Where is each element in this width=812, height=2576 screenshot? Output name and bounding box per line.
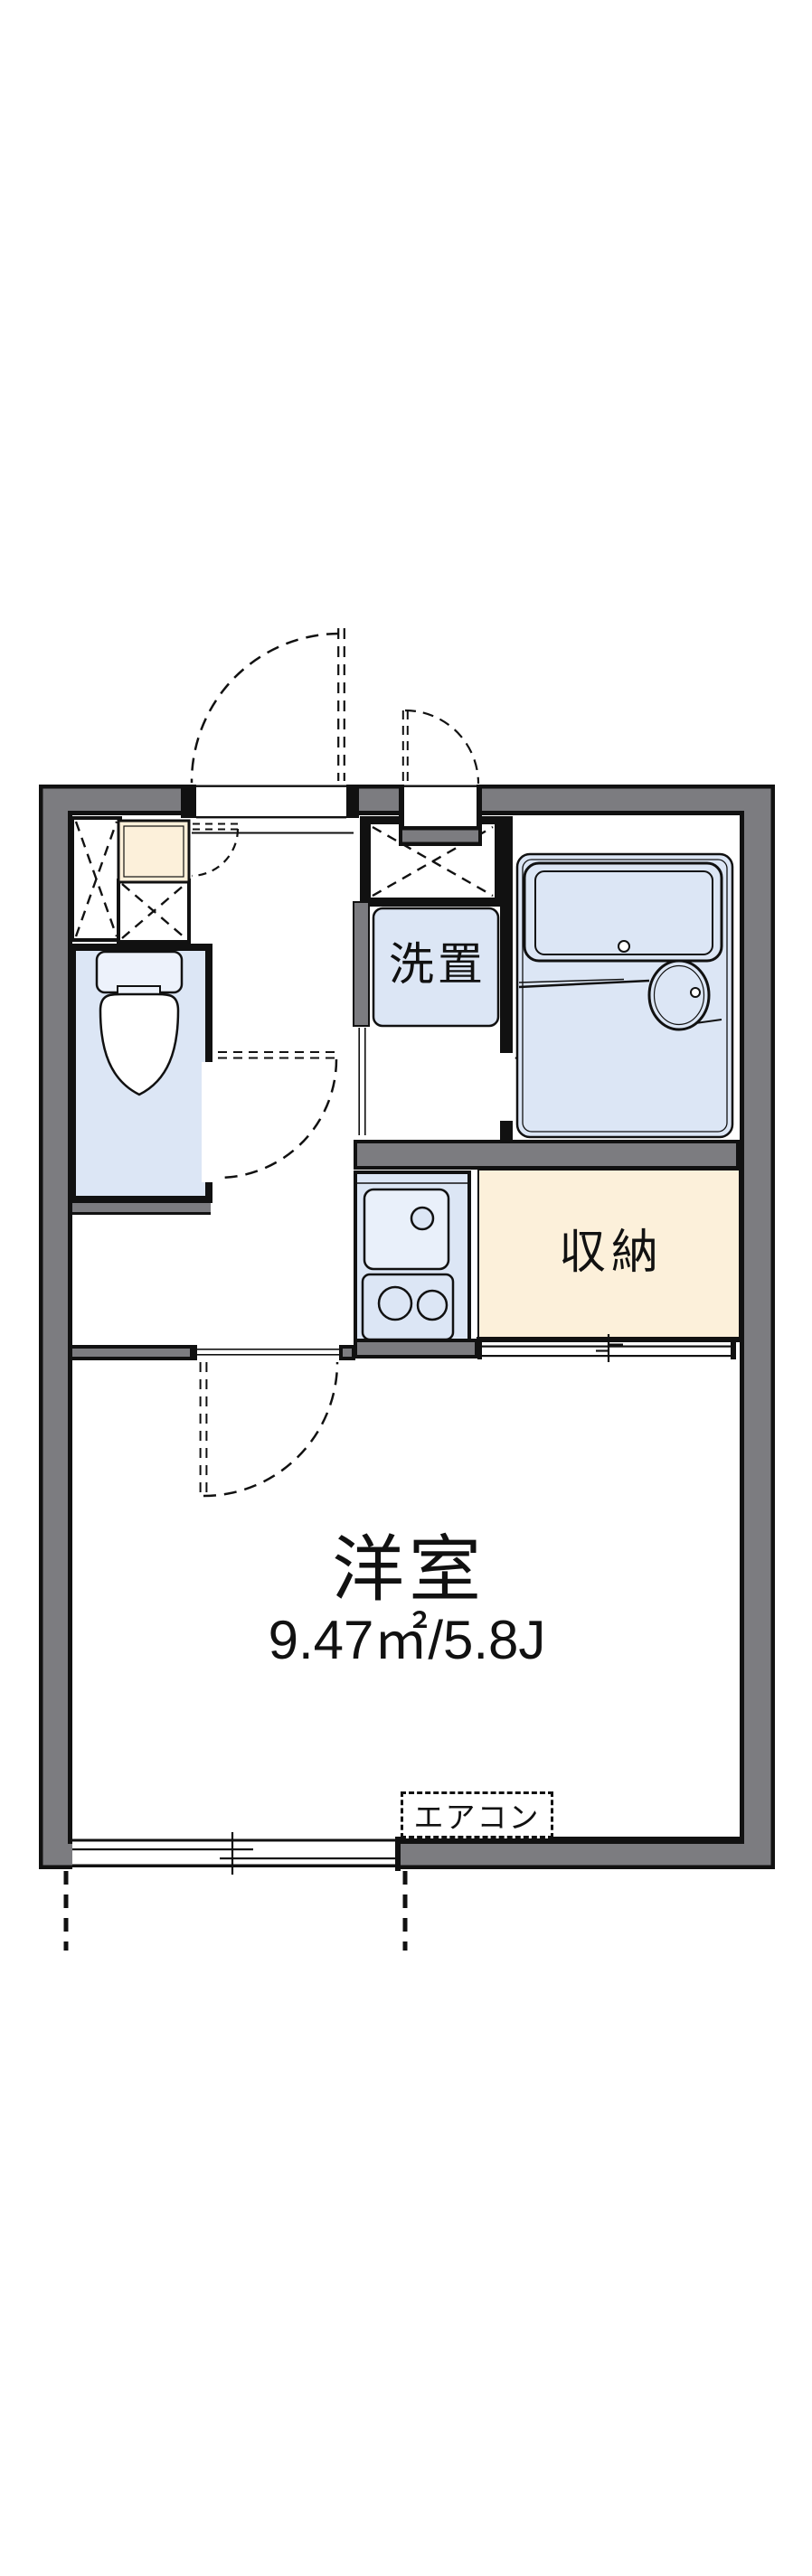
balcony-boundary [66,1871,405,1951]
kitchen-sink [364,1189,448,1269]
entrance-door-swing [192,628,345,783]
air-conditioner-label: エアコン [414,1793,541,1837]
bathtub [524,863,722,961]
bedroom-label: 洋室 [332,1534,486,1606]
genkan-step-line [192,832,354,834]
meter-box [399,710,482,846]
floor-plan-page: 洋室 9.47㎡/5.8J 収納 洗置 エアコン [0,0,812,2576]
stove [363,1274,453,1340]
floor-plan-drawing [0,0,812,2576]
shoe-cabinet [118,821,189,882]
service-wall-band [354,1140,740,1170]
bathtub-drain [618,941,629,952]
basin-faucet [691,988,700,997]
bedroom-size-label: 9.47㎡/5.8J [269,1613,546,1668]
meter-box-door-swing [403,710,478,784]
washer-space-label: 洗置 [389,942,486,987]
bathroom [517,854,732,1137]
kitchen-unit [355,1172,469,1348]
stove-burner [418,1291,447,1320]
toilet-room [69,944,214,1215]
stove-burner [379,1287,411,1320]
wash-basin [649,961,709,1029]
sink-faucet [411,1208,433,1229]
balcony-window [72,1832,401,1875]
closet-label: 収納 [559,1229,664,1276]
air-conditioner-box: エアコン [401,1791,553,1838]
